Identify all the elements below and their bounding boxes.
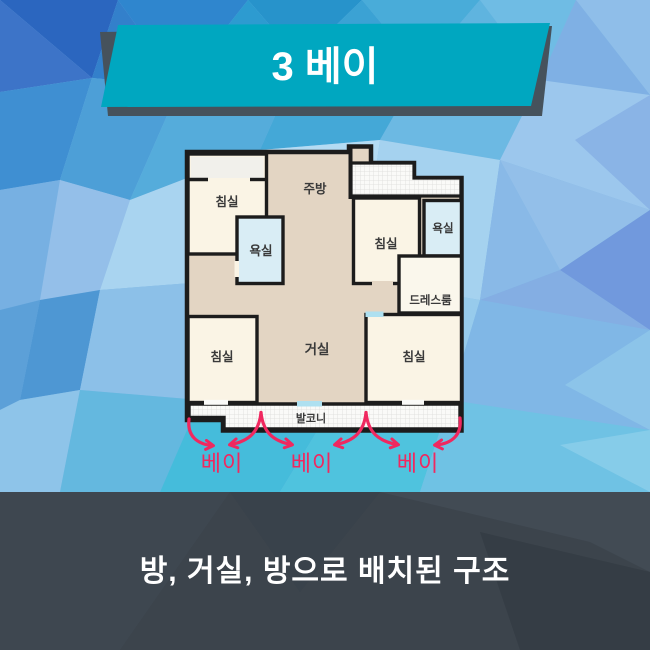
footer: 방, 거실, 방으로 배치된 구조 [0,492,650,650]
banner-title: 3 베이 [272,45,379,89]
bay-arrow-split1-right [261,413,291,445]
door-gap [204,400,228,405]
bay-arrow-right [436,418,460,445]
room-label-bedroom-right: 침실 [374,236,397,251]
door-gap [366,312,384,318]
room-label-dressroom: 드레스룸 [409,293,452,307]
room-label-bedroom-bottom-right: 침실 [402,349,425,364]
bay-arrow-split1-left [231,413,261,445]
bay-label-3: 베이 [397,446,439,478]
bay-label-1: 베이 [201,446,243,478]
utility-hatch-area [351,163,461,196]
infographic: 3 베이 [0,0,650,650]
room-label-bathroom-left: 욕실 [249,243,272,258]
window-strip [191,157,264,178]
room-label-kitchen: 주방 [303,181,327,196]
door-gap [372,281,393,286]
room-label-bedroom-top-left: 침실 [215,194,238,209]
footer-caption: 방, 거실, 방으로 배치된 구조 [0,546,650,590]
room-label-bedroom-bottom-left: 침실 [210,349,233,364]
bay-arrow-split2-right [366,413,397,445]
door-gap [402,400,424,405]
title-banner: 3 베이 [85,14,565,126]
room-label-living: 거실 [305,342,330,357]
door-gap [235,261,240,277]
room-label-bathroom-right: 욕실 [432,221,453,235]
bay-label-2: 베이 [291,446,333,478]
bay-arrow-split2-left [336,413,366,445]
bay-arrow-left [189,419,212,446]
floor-plan: 침실 주방 욕실 침실 욕실 드레스룸 침실 거실 침실 발코니 [180,140,470,438]
